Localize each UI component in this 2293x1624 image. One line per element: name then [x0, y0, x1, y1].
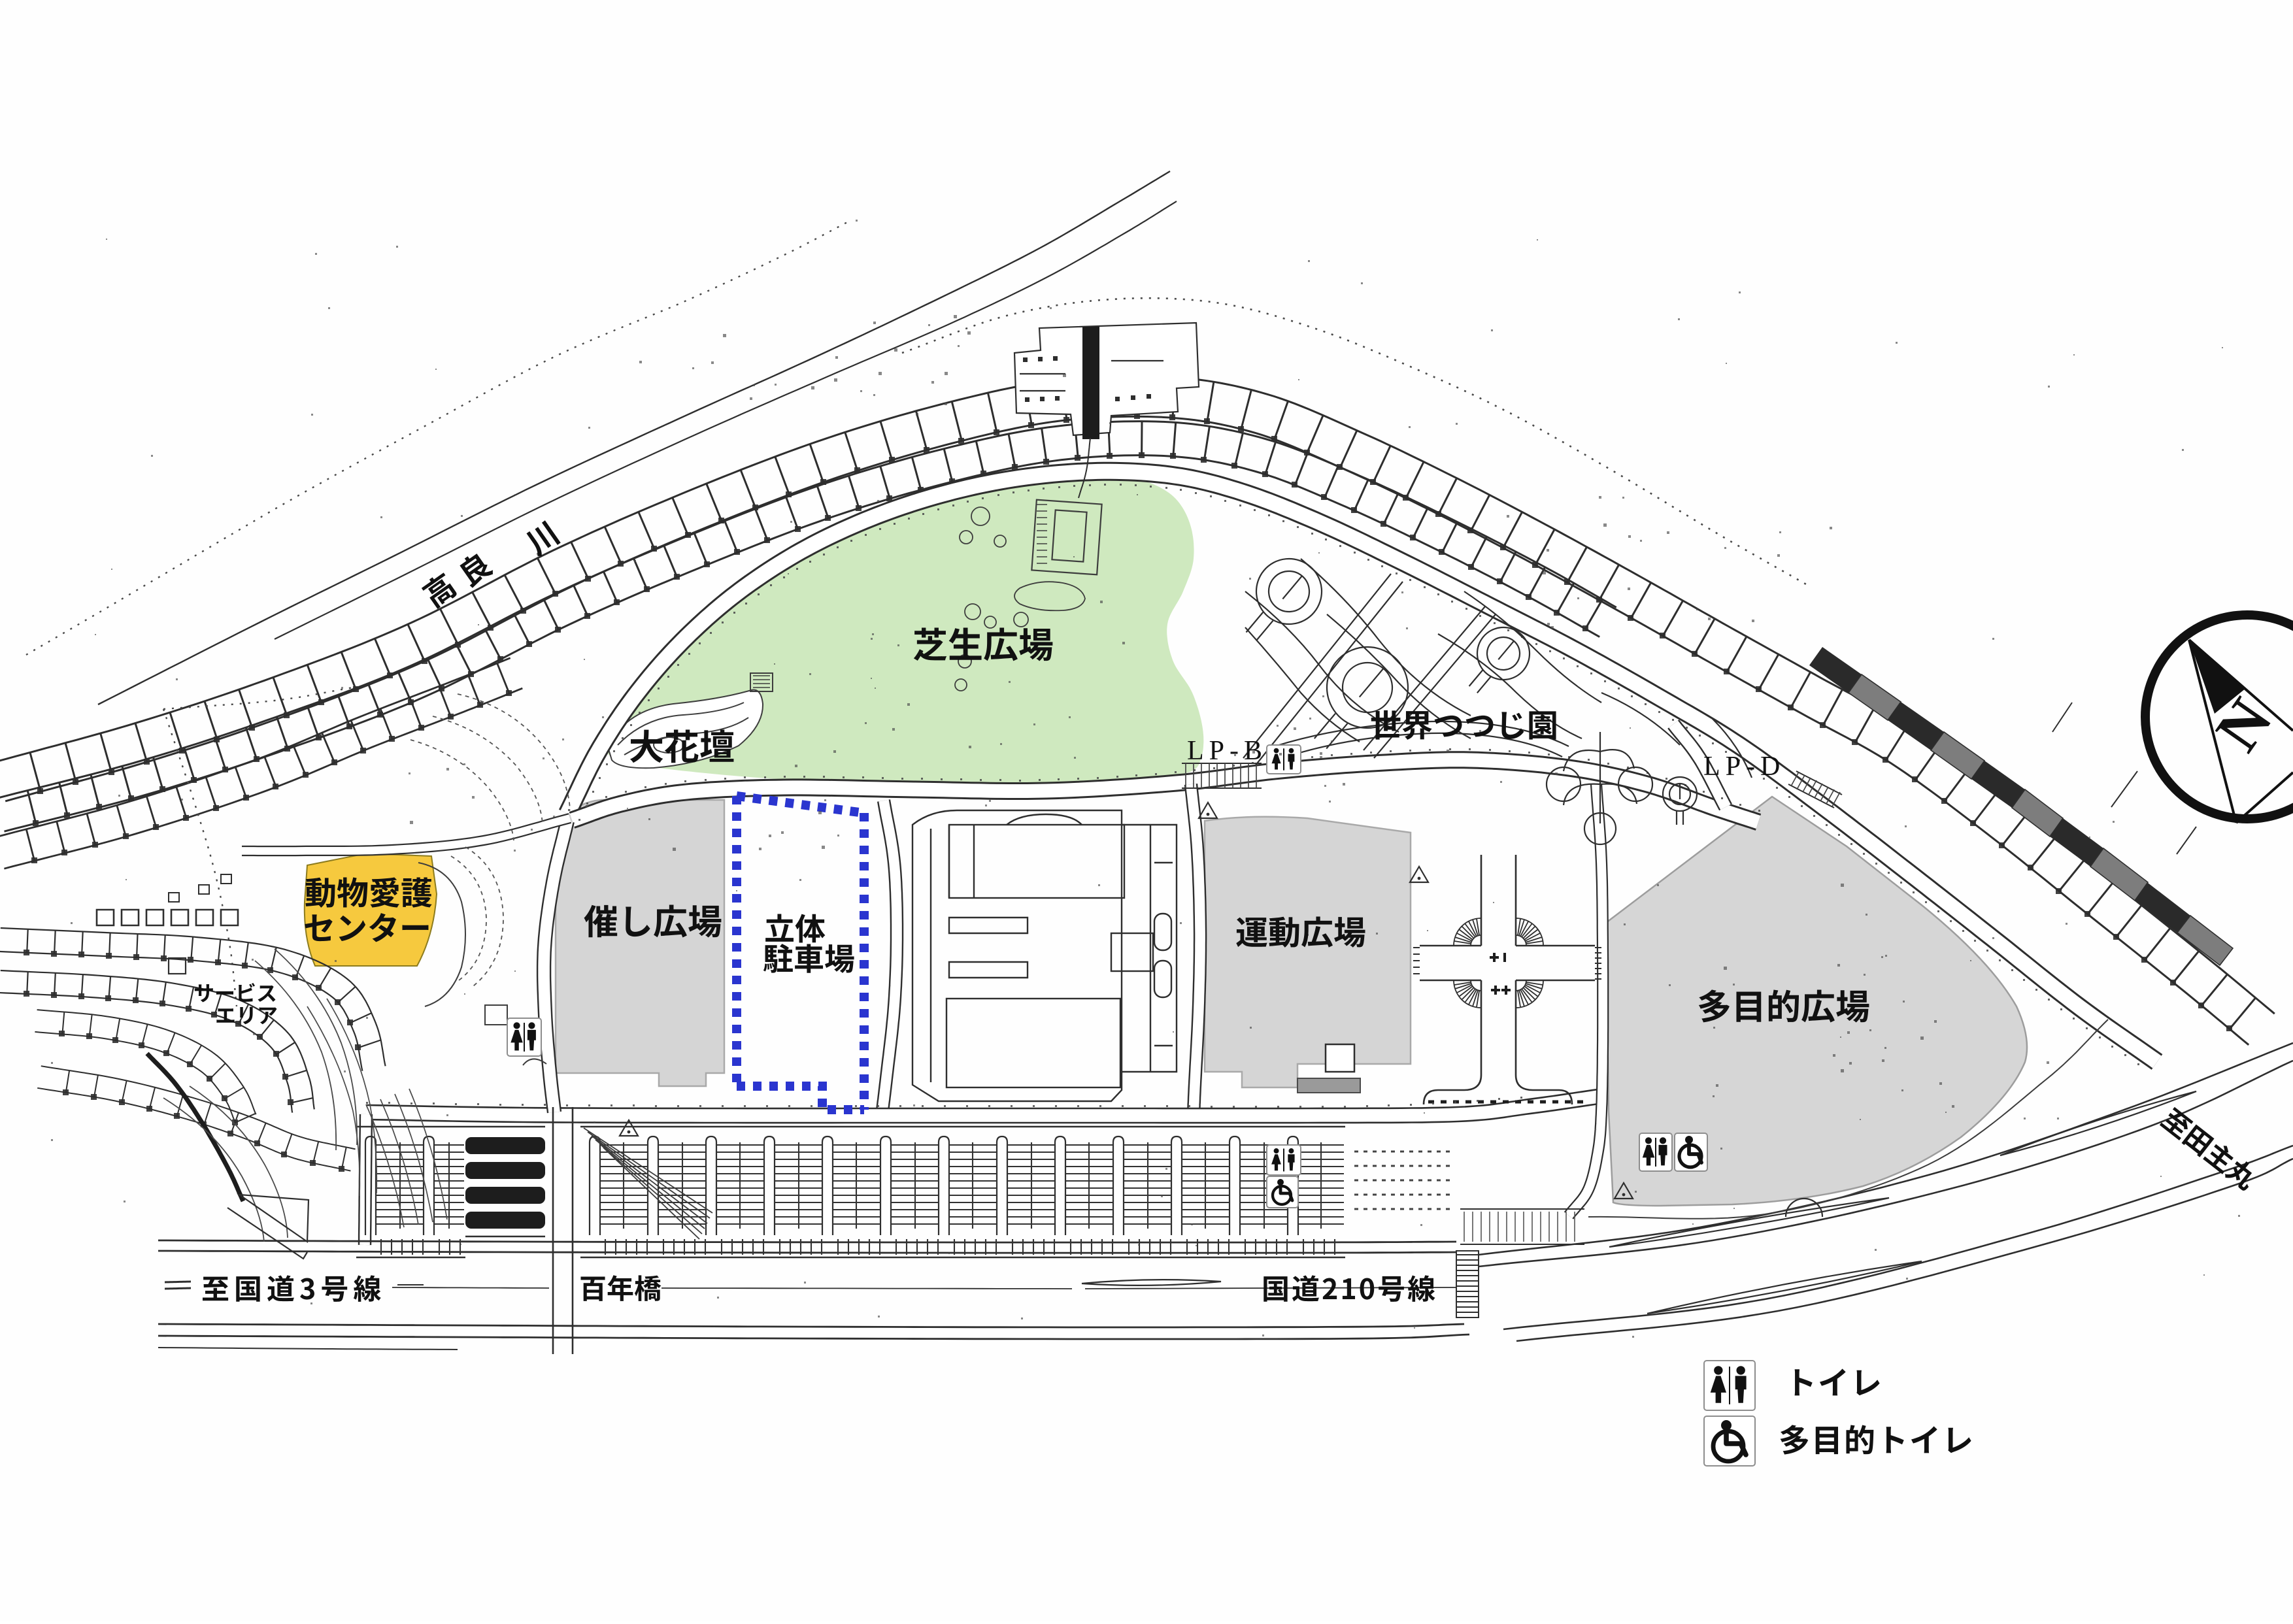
svg-text:LP-B: LP-B: [1187, 736, 1267, 766]
svg-text:LP-D: LP-D: [1703, 752, 1785, 782]
